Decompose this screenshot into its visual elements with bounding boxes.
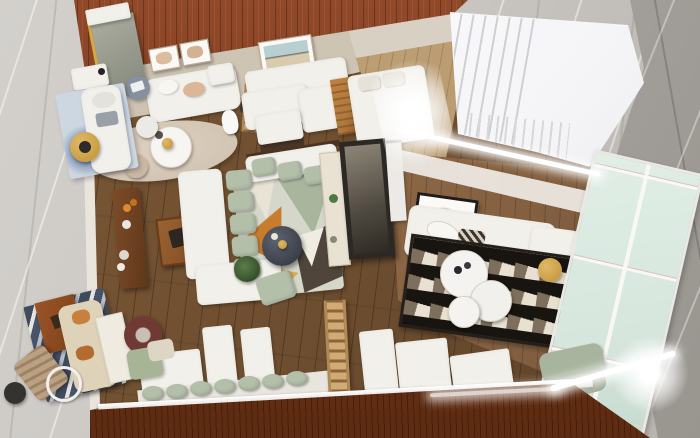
desk-lamp — [98, 68, 105, 75]
stool-white — [136, 116, 158, 138]
potted-plant — [234, 256, 260, 282]
seat-cushion-3 — [229, 213, 257, 235]
seat-cushion-2 — [227, 191, 255, 213]
shelf-plant — [329, 194, 338, 203]
bench-pillow-l7 — [286, 371, 308, 386]
console-decor-orange-1 — [123, 204, 131, 212]
dark-table-gold-cup — [278, 240, 287, 249]
nesting-table-small — [448, 296, 480, 328]
console-decor-orange-2 — [130, 199, 137, 206]
console-decor-plate-1 — [122, 220, 131, 229]
ladder-trellis — [324, 299, 351, 392]
glass-partition-panel — [344, 144, 389, 255]
table-decor-gold — [162, 138, 173, 149]
gold-table-decor — [79, 141, 91, 153]
arc-floor-lamp — [46, 366, 82, 402]
bench-pillow-l4 — [214, 379, 236, 394]
seat-cushion-1 — [225, 169, 253, 191]
table-pebble-2 — [464, 262, 471, 269]
bench-pillow-l1 — [142, 386, 164, 401]
bench-pillow-l3 — [190, 381, 212, 396]
rabbit-print-art — [155, 51, 173, 66]
gold-side-table-lounge — [538, 258, 562, 282]
dark-table-white-cup — [271, 233, 278, 240]
seat-cushion-4 — [231, 235, 259, 257]
bench-back-r1 — [359, 328, 400, 397]
seat-cushion-top-2 — [277, 160, 304, 182]
bench-pillow-l6 — [262, 374, 284, 389]
rabbit-print-art-2 — [186, 45, 204, 60]
bench-pillow-l2 — [166, 384, 188, 399]
seat-cushion-top-1 — [251, 156, 278, 178]
shelf-decor — [330, 236, 337, 243]
table-pebble-1 — [454, 266, 462, 274]
corner-light-flare — [612, 336, 688, 412]
console-decor-plate-3 — [117, 263, 125, 271]
stool-dark — [4, 382, 26, 404]
bench-pillow-l5 — [238, 376, 260, 391]
console-decor-plate-2 — [119, 250, 129, 260]
apartment-render-scene: Top-down bird's-eye 3D render of a furni… — [0, 0, 700, 438]
